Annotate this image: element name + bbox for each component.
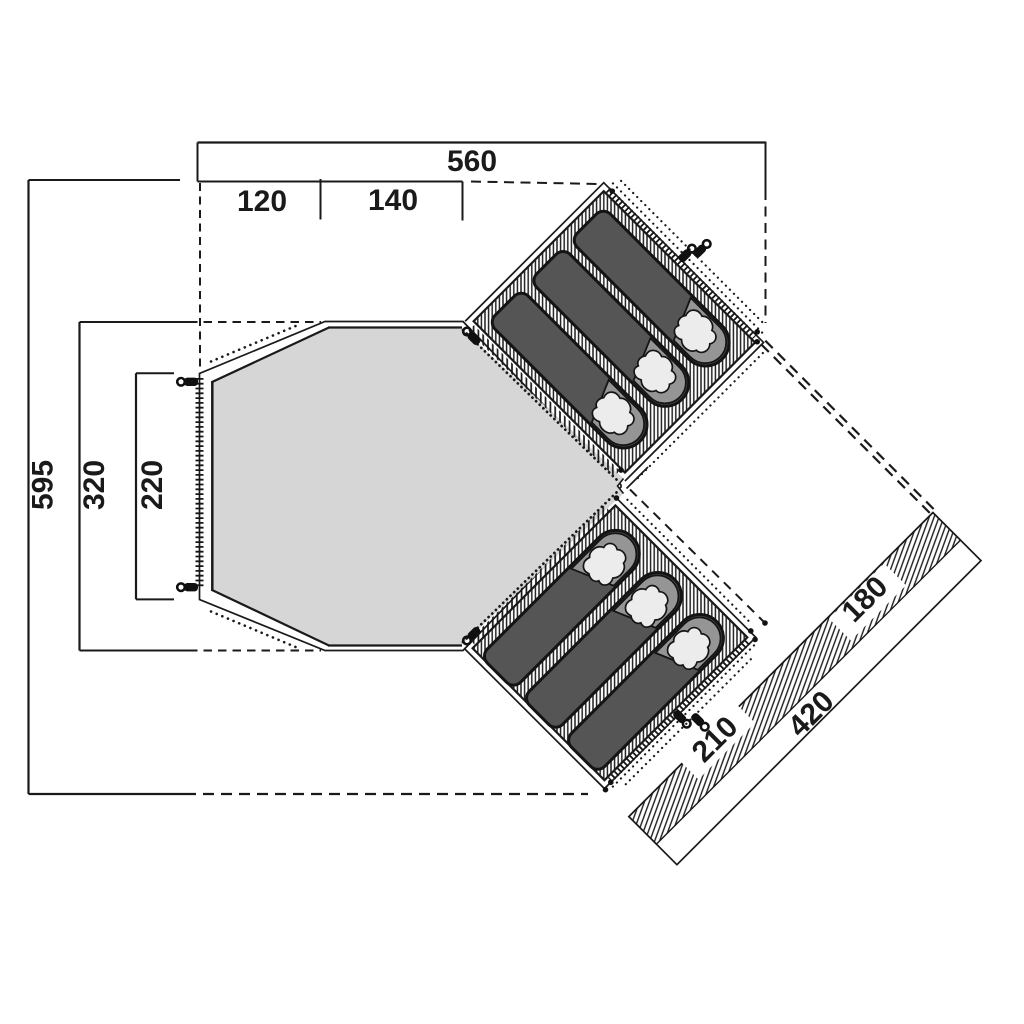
svg-text:320: 320 (78, 460, 111, 510)
svg-text:220: 220 (136, 460, 169, 510)
svg-text:140: 140 (368, 184, 418, 217)
svg-text:595: 595 (27, 460, 60, 510)
svg-text:560: 560 (447, 145, 497, 178)
svg-text:120: 120 (237, 185, 287, 218)
